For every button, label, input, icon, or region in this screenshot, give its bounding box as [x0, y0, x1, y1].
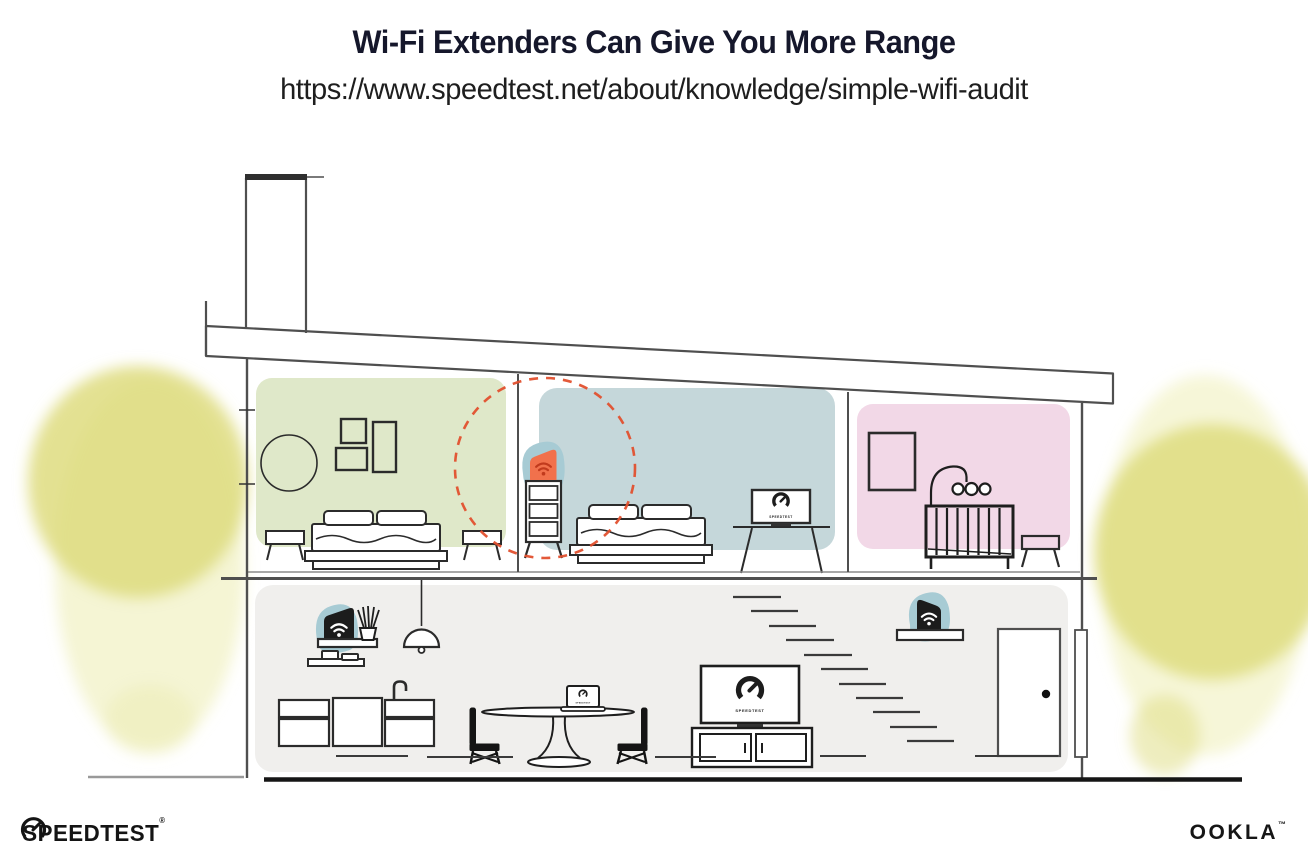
wall-shelf [897, 630, 963, 640]
chimney-cap [245, 174, 307, 180]
header: Wi-Fi Extenders Can Give You More Range … [0, 24, 1308, 107]
entry-door [998, 629, 1060, 756]
bed [570, 505, 712, 563]
tv-screen-label: SPEEDTEST [769, 515, 792, 519]
laptop-screen-label: SPEEDTEST [575, 703, 590, 705]
speedtest-gauge-icon [20, 816, 47, 843]
bed [305, 511, 447, 569]
downspout [1075, 630, 1087, 757]
foliage-left [28, 366, 248, 755]
house-illustration: SPEEDTEST [0, 0, 1308, 861]
tv-living-room: SPEEDTEST [701, 666, 799, 727]
media-console [692, 728, 812, 767]
speedtest-logo: SPEEDTEST® [20, 816, 168, 847]
chimney [245, 174, 324, 333]
ookla-logo-text: OOKLA [1190, 821, 1278, 844]
infographic-page: Wi-Fi Extenders Can Give You More Range … [0, 0, 1308, 861]
foliage-right [1094, 375, 1308, 775]
registered-mark: ® [159, 816, 165, 825]
laptop: SPEEDTEST [561, 686, 605, 711]
trademark-mark: ™ [1278, 820, 1286, 829]
door-knob [1042, 690, 1050, 698]
ookla-logo: OOKLA™ [1190, 820, 1286, 845]
page-title: Wi-Fi Extenders Can Give You More Range [353, 24, 956, 61]
stool [1022, 536, 1059, 567]
nursery-wall-color [857, 404, 1070, 549]
source-url: https://www.speedtest.net/about/knowledg… [20, 73, 1289, 107]
tv-screen-label: SPEEDTEST [735, 708, 764, 713]
